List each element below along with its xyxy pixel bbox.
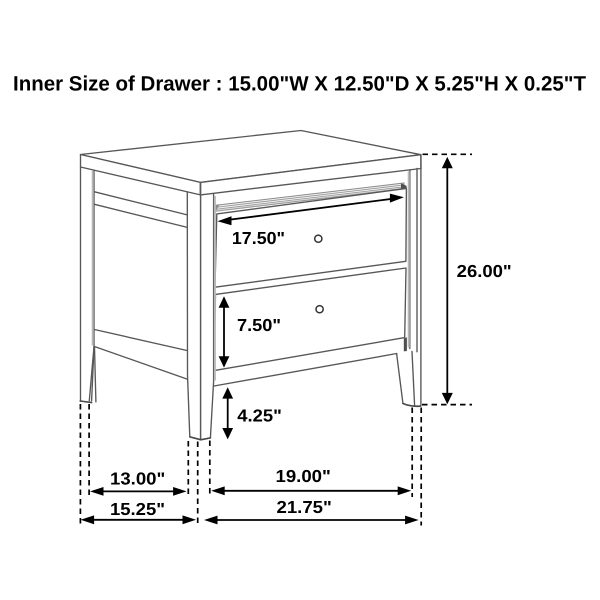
svg-text:19.00": 19.00": [276, 466, 331, 486]
svg-text:17.50": 17.50": [232, 228, 285, 248]
svg-text:Inner Size of Drawer : 15.00"W: Inner Size of Drawer : 15.00"W X 12.50"D…: [13, 73, 586, 96]
svg-text:15.25": 15.25": [110, 499, 165, 519]
svg-text:4.25": 4.25": [237, 405, 281, 425]
svg-text:21.75": 21.75": [277, 497, 332, 517]
svg-text:13.00": 13.00": [110, 468, 165, 488]
svg-text:7.50": 7.50": [237, 315, 281, 335]
svg-text:26.00": 26.00": [457, 261, 512, 281]
